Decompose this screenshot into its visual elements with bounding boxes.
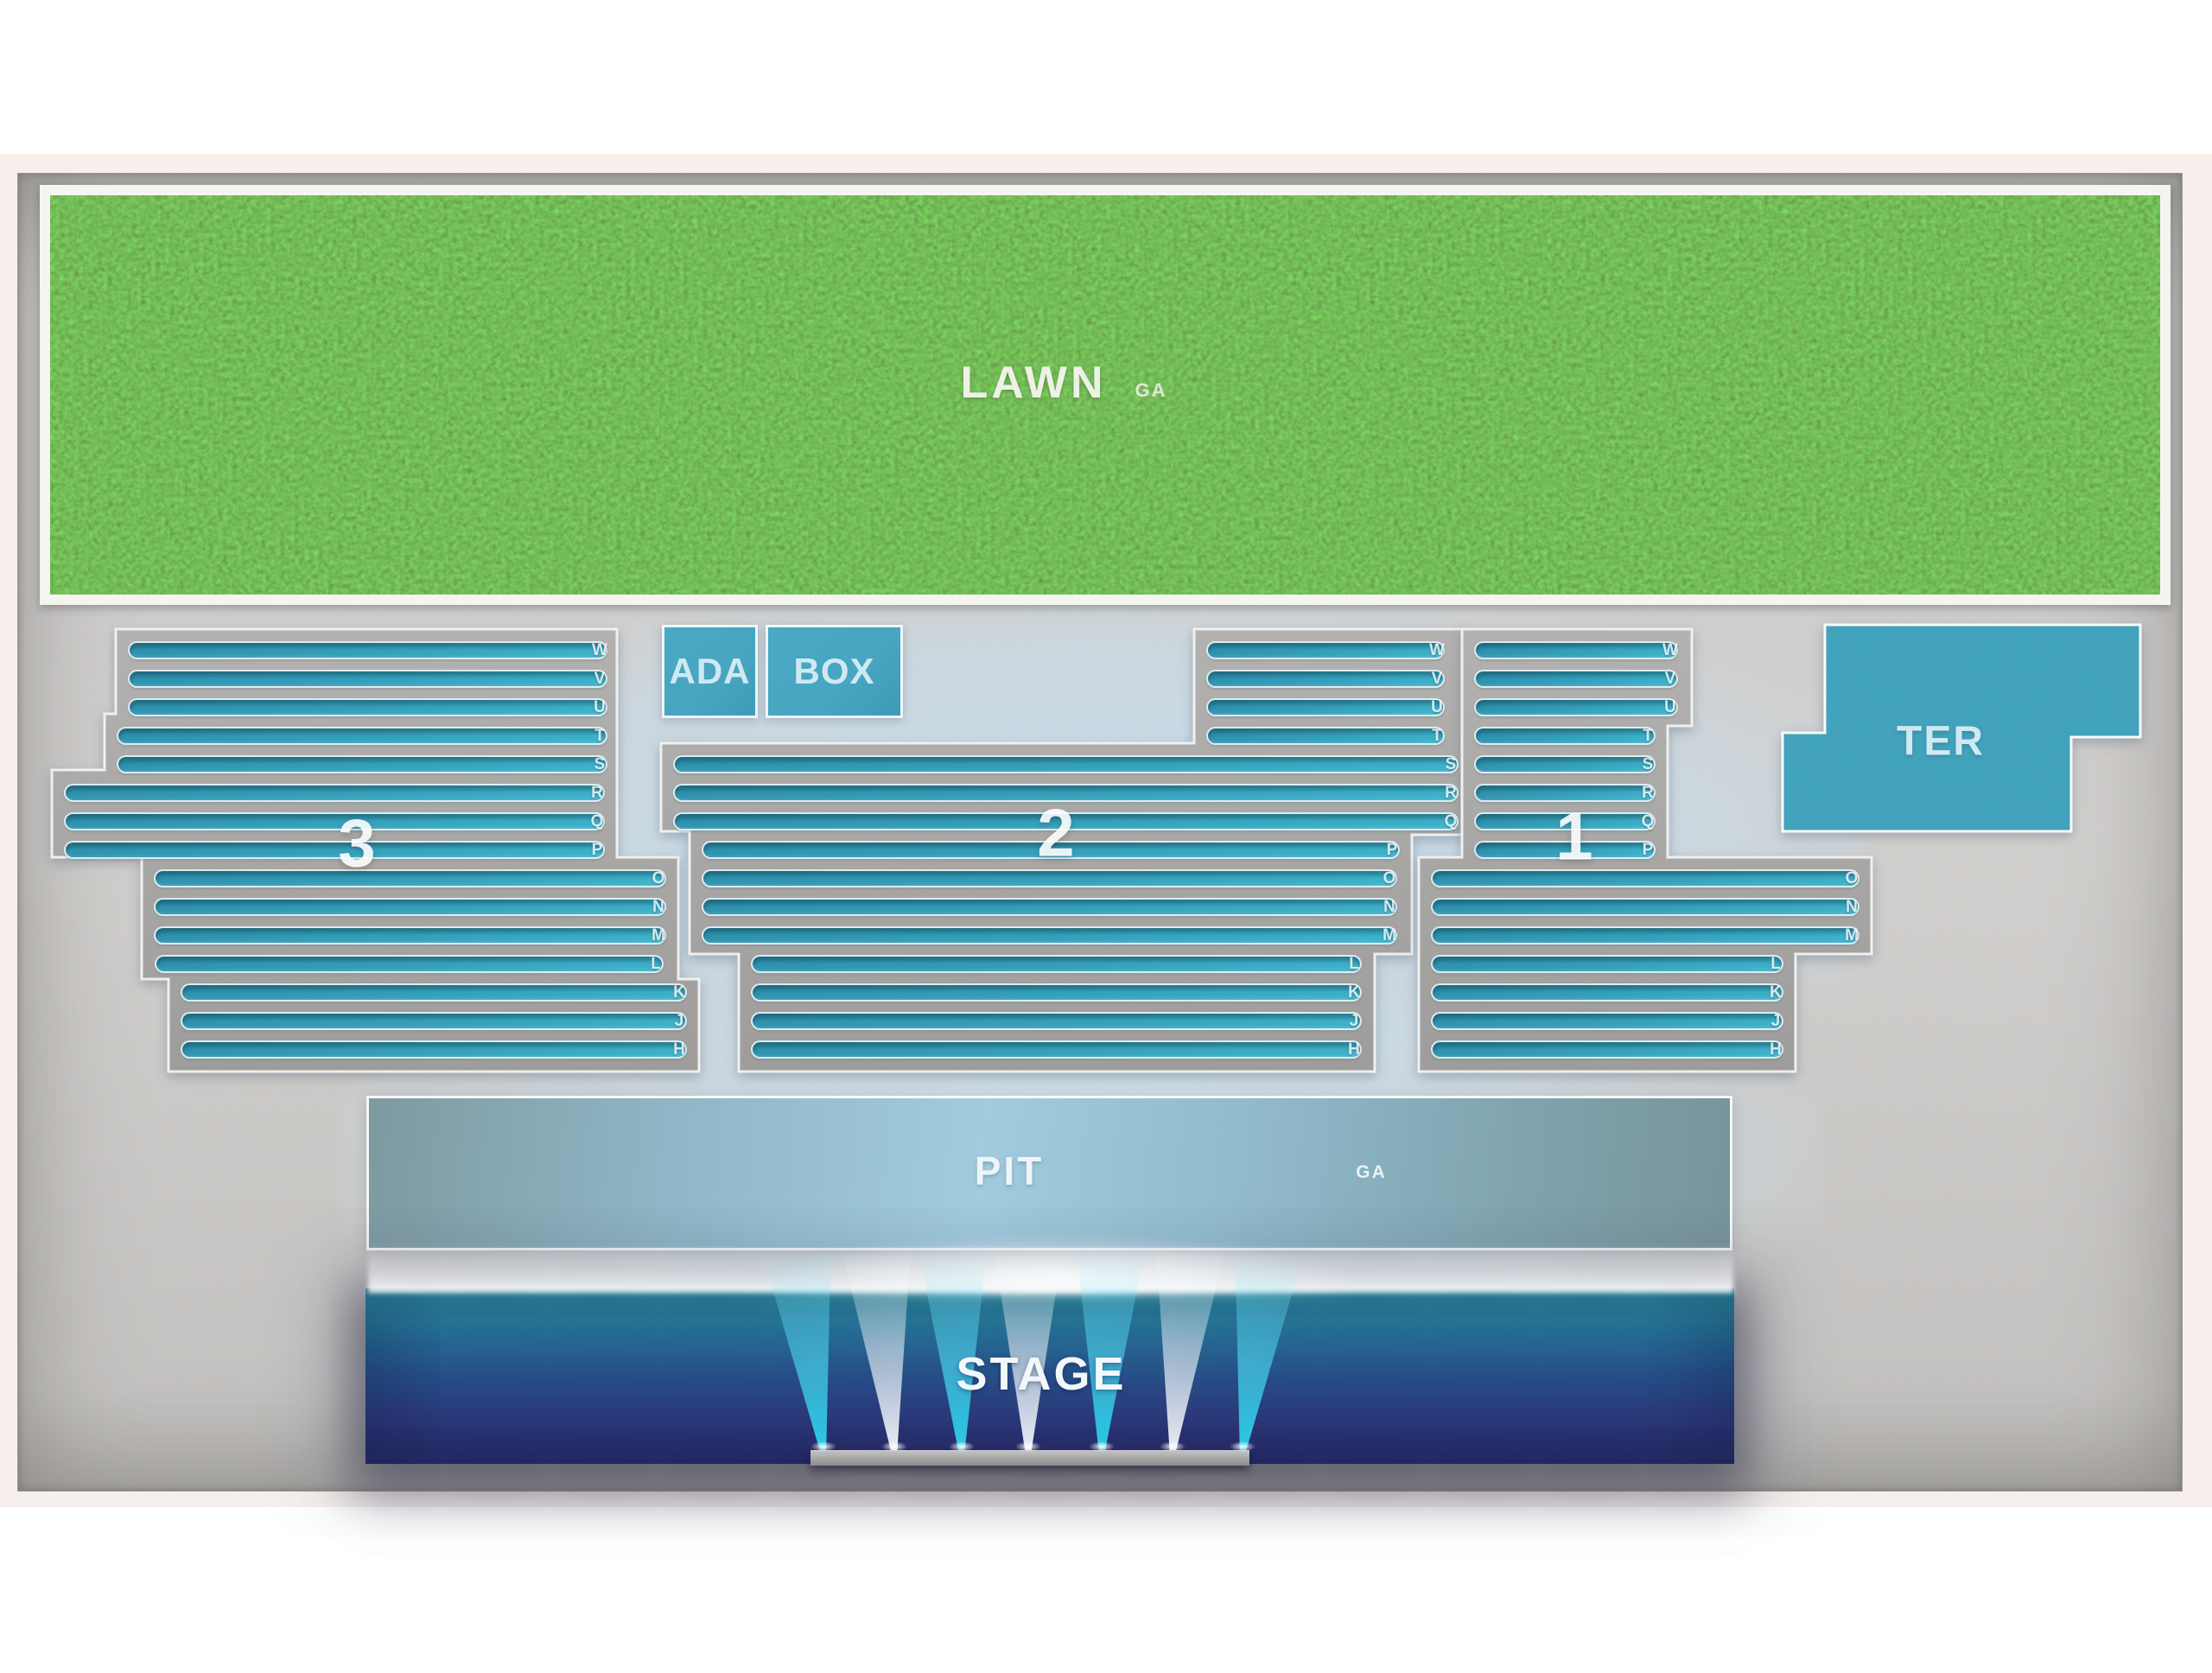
row-letter: M (1842, 926, 1861, 945)
section-1-number: 1 (1555, 798, 1592, 876)
ada-area[interactable]: ADA (662, 625, 758, 718)
row-letter: U (1661, 698, 1680, 717)
lawn-area[interactable]: LAWN GA (50, 195, 2160, 595)
row-letter: P (1638, 841, 1657, 860)
row-letter: T (1638, 727, 1657, 746)
row-letter: H (1344, 1040, 1363, 1059)
row-letter: T (590, 727, 609, 746)
seat-row-3-O[interactable]: O (154, 869, 666, 887)
seat-row-2-V[interactable]: V (1206, 670, 1445, 688)
seat-row-3-P[interactable]: P (64, 841, 605, 859)
row-letter: N (649, 898, 668, 917)
seat-row-3-H[interactable]: H (181, 1040, 687, 1059)
seat-row-3-M[interactable]: M (154, 926, 666, 945)
box-label: BOX (793, 651, 874, 692)
row-letter: Q (1638, 812, 1657, 831)
row-letter: O (1842, 869, 1861, 888)
row-letter: V (1427, 670, 1446, 689)
row-letter: Q (588, 812, 607, 831)
row-letter: O (649, 869, 668, 888)
row-letter: K (670, 983, 689, 1002)
seat-row-3-K[interactable]: K (181, 983, 687, 1002)
row-letter: M (649, 926, 668, 945)
seat-row-2-J[interactable]: J (751, 1012, 1362, 1030)
row-letter: W (590, 641, 609, 660)
row-letter: R (1441, 784, 1460, 803)
row-letter: L (1344, 955, 1363, 974)
row-letter: U (590, 698, 609, 717)
lawn-ga-label: GA (1135, 379, 1167, 402)
seat-row-2-S[interactable]: S (673, 755, 1459, 773)
pit-label: PIT (975, 1148, 1045, 1194)
seat-row-1-N[interactable]: N (1431, 898, 1859, 916)
seat-row-2-L[interactable]: L (751, 955, 1362, 973)
seat-row-1-H[interactable]: H (1431, 1040, 1783, 1059)
seat-row-1-L[interactable]: L (1431, 955, 1783, 973)
stage-truss (810, 1450, 1249, 1466)
row-letter: R (1638, 784, 1657, 803)
seat-row-3-Q[interactable]: Q (64, 812, 605, 830)
row-letter: T (1427, 727, 1446, 746)
seat-row-1-M[interactable]: M (1431, 926, 1859, 945)
row-letter: S (1441, 755, 1460, 774)
seat-row-3-L[interactable]: L (155, 955, 664, 973)
pit-ga-label: GA (1356, 1162, 1387, 1183)
seat-row-3-J[interactable]: J (181, 1012, 687, 1030)
section-2-number: 2 (1037, 794, 1074, 873)
seat-row-2-T[interactable]: T (1206, 727, 1445, 745)
seat-row-1-U[interactable]: U (1474, 698, 1678, 716)
row-letter: V (590, 670, 609, 689)
row-letter: J (1766, 1012, 1785, 1031)
stage-label: STAGE (956, 1347, 1126, 1401)
seat-row-3-R[interactable]: R (64, 784, 605, 802)
row-letter: J (1344, 1012, 1363, 1031)
seat-row-3-W[interactable]: W (128, 641, 607, 659)
seat-row-2-M[interactable]: M (702, 926, 1397, 945)
row-letter: S (1638, 755, 1657, 774)
row-letter: U (1427, 698, 1446, 717)
row-letter: N (1842, 898, 1861, 917)
section-3-number: 3 (338, 805, 375, 883)
row-letter: H (670, 1040, 689, 1059)
row-letter: Q (1441, 812, 1460, 831)
seat-row-3-V[interactable]: V (128, 670, 607, 688)
seat-row-3-T[interactable]: T (117, 727, 607, 745)
row-letter: H (1766, 1040, 1785, 1059)
row-letter: L (646, 955, 665, 974)
row-letter: K (1344, 983, 1363, 1002)
seat-row-2-H[interactable]: H (751, 1040, 1362, 1059)
row-letter: P (1382, 841, 1402, 860)
seat-row-2-W[interactable]: W (1206, 641, 1445, 659)
row-letter: W (1661, 641, 1680, 660)
row-letter: L (1766, 955, 1785, 974)
seat-row-1-O[interactable]: O (1431, 869, 1859, 887)
lawn-label: LAWN (960, 357, 1106, 409)
seat-row-3-U[interactable]: U (128, 698, 607, 716)
terrace-label: TER (1897, 718, 1985, 766)
row-letter: N (1380, 898, 1399, 917)
row-letter: O (1380, 869, 1399, 888)
seat-row-2-N[interactable]: N (702, 898, 1397, 916)
seat-row-3-N[interactable]: N (154, 898, 666, 916)
seat-row-2-K[interactable]: K (751, 983, 1362, 1002)
seat-row-1-J[interactable]: J (1431, 1012, 1783, 1030)
pit-area[interactable]: PIT GA (366, 1096, 1732, 1250)
seating-chart-page: LAWN GA WVUTSRQPONMLKJHWVUTSRQPONMLKJHWV… (0, 0, 2212, 1673)
seat-row-2-U[interactable]: U (1206, 698, 1445, 716)
row-letter: S (590, 755, 609, 774)
row-letter: W (1427, 641, 1446, 660)
row-letter: R (588, 784, 607, 803)
seat-row-3-S[interactable]: S (117, 755, 607, 773)
ada-label: ADA (670, 651, 751, 692)
seat-row-1-W[interactable]: W (1474, 641, 1678, 659)
row-letter: M (1380, 926, 1399, 945)
row-letter: P (588, 841, 607, 860)
box-area[interactable]: BOX (766, 625, 903, 718)
seat-row-1-S[interactable]: S (1474, 755, 1656, 773)
seat-row-1-K[interactable]: K (1431, 983, 1783, 1002)
row-letter: J (670, 1012, 689, 1031)
row-letter: K (1766, 983, 1785, 1002)
row-letter: V (1661, 670, 1680, 689)
seat-row-1-T[interactable]: T (1474, 727, 1656, 745)
seat-row-1-V[interactable]: V (1474, 670, 1678, 688)
